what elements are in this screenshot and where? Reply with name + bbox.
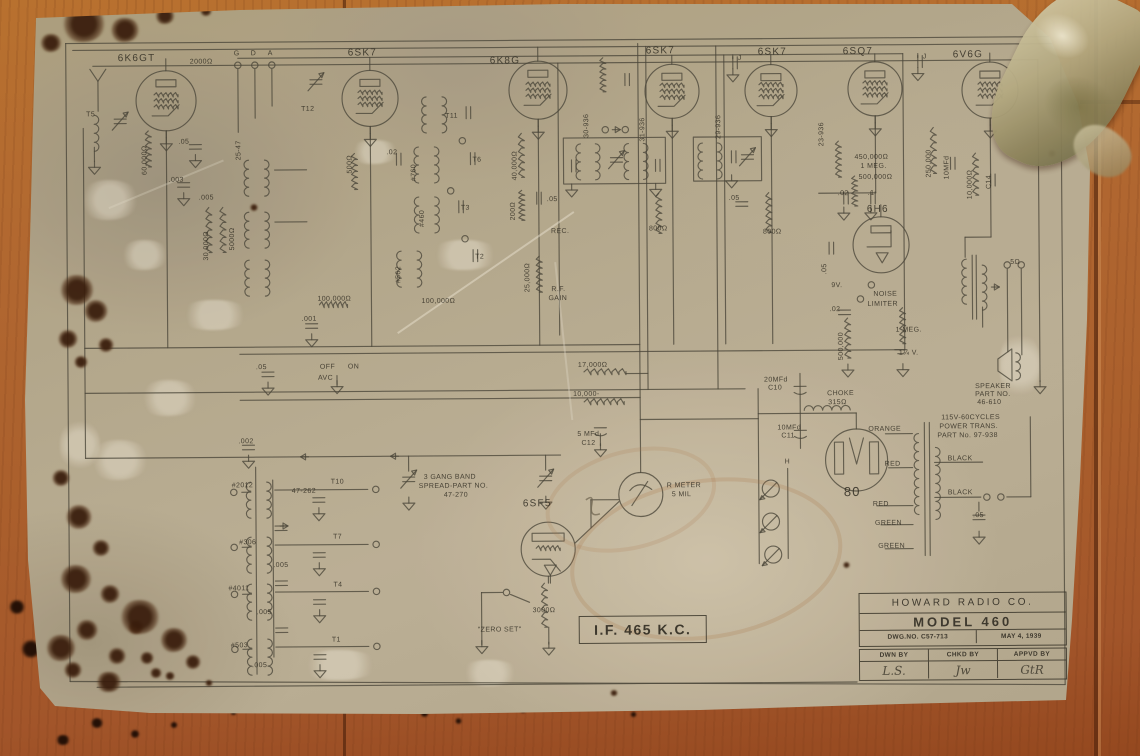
- schematic-label: C12: [581, 440, 595, 447]
- stain-blob: [250, 204, 258, 211]
- schematic-label: .005: [199, 194, 214, 201]
- schematic-label: #306: [239, 539, 256, 546]
- schematic-label: 6V6G: [953, 50, 983, 60]
- schematic-label: 6K8G: [490, 56, 520, 66]
- schematic-label: T5: [86, 111, 95, 118]
- schematic-label: .05: [973, 512, 984, 519]
- schematic-label: 6SQ7: [843, 47, 873, 57]
- schematic-label: PART No. 97-938: [937, 432, 998, 439]
- schematic-label: 30,000Ω: [203, 231, 210, 261]
- schematic-label: #562: [395, 266, 402, 283]
- schematic-label: 115V-60CYCLES: [941, 414, 1000, 421]
- schematic-label: REC.: [551, 228, 569, 235]
- photo-of-schematic: GDA2000ΩT12.02500ΩT560,000Ω.05.00330,000…: [0, 0, 1140, 756]
- model-number: MODEL 460: [860, 613, 1066, 631]
- schematic-label: .003: [169, 177, 184, 184]
- schematic-label: 1¼ V.: [899, 350, 919, 357]
- schematic-label: GAIN: [548, 295, 567, 302]
- schematic-label: 500,000: [838, 332, 845, 360]
- schematic-label: CHOKE: [827, 390, 854, 397]
- schematic-label: T2: [475, 254, 484, 261]
- schematic-label: 3000Ω: [533, 607, 556, 614]
- stain-blob: [90, 718, 104, 728]
- schematic-label: RED: [885, 461, 901, 468]
- schematic-label: OFF: [320, 364, 335, 371]
- schematic-label: 100,000Ω: [421, 298, 455, 305]
- schematic-label: 1 MEG.: [861, 163, 887, 170]
- schematic-label: 450,000Ω: [854, 154, 888, 161]
- schematic-label: GREEN: [878, 543, 905, 550]
- schematic-label: 9V.: [831, 282, 842, 289]
- schematic-label: .02: [830, 306, 841, 313]
- if-frequency-box: I.F. 465 K.C.: [579, 615, 707, 644]
- drawing-number: DWG.NO. C57-713: [860, 630, 977, 644]
- checked-by-header: CHKD BY: [928, 649, 997, 660]
- schematic-label: #460: [419, 210, 426, 227]
- schematic-label: T1: [332, 637, 341, 644]
- schematic-label: #760: [411, 164, 418, 181]
- stain-blob: [8, 600, 26, 614]
- schematic-label: .002: [238, 438, 253, 445]
- schematic-label: SPEAKER: [975, 383, 1011, 390]
- schematic-label: C10: [768, 385, 782, 392]
- schematic-label: 800Ω: [649, 225, 668, 232]
- schematic-label: POWER TRANS.: [939, 423, 998, 430]
- schematic-label: 30-936: [583, 114, 590, 138]
- schematic-paper: GDA2000ΩT12.02500ΩT560,000Ω.05.00330,000…: [0, 0, 1140, 756]
- schematic-label: PART NO.: [975, 391, 1011, 398]
- schematic-label: 25-47: [235, 140, 242, 160]
- schematic-label: .1: [868, 190, 875, 197]
- schematic-label: 29-936: [715, 115, 722, 139]
- schematic-label: 10MFd: [943, 156, 950, 180]
- schematic-label: 250,000: [925, 149, 932, 177]
- schematic-label: BLACK: [948, 455, 973, 462]
- approved-by-header: APPVD BY: [997, 649, 1066, 660]
- schematic-label: #4011: [228, 585, 249, 592]
- schematic-label: 6SK7: [348, 48, 377, 58]
- stain-blob: [74, 356, 88, 368]
- stain-blob: [170, 722, 178, 728]
- schematic-label: .005: [252, 662, 267, 669]
- schematic-label: T12: [301, 106, 314, 113]
- schematic-label: 2000Ω: [190, 58, 213, 65]
- checked-by-signature: Jw: [928, 661, 997, 678]
- schematic-label: 1 MEG.: [896, 327, 922, 334]
- drawn-by-header: DWN BY: [860, 650, 928, 661]
- stain-blob: [55, 735, 71, 745]
- schematic-label: 25,000Ω: [524, 263, 531, 293]
- schematic-label: 47-262: [292, 488, 316, 495]
- schematic-label: 3 GANG BAND: [424, 474, 476, 481]
- schematic-label: 20MFd: [764, 376, 788, 383]
- signature-block: DWN BY CHKD BY APPVD BY L.S. Jw GtR: [859, 648, 1067, 681]
- company-name: HOWARD RADIO CO.: [860, 593, 1066, 614]
- schematic-label: NOISE: [873, 291, 897, 298]
- schematic-label: ORANGE: [868, 426, 901, 433]
- schematic-label: #2012: [232, 482, 254, 489]
- schematic-label: C14: [986, 175, 993, 189]
- schematic-label: T4: [333, 582, 342, 589]
- schematic-label: 6SK7: [646, 46, 675, 56]
- stain-blob: [630, 712, 637, 717]
- schematic-label: 80: [844, 485, 861, 498]
- schematic-label: BLACK: [948, 489, 973, 496]
- schematic-label: .02: [386, 149, 397, 156]
- schematic-label: C11: [781, 432, 795, 439]
- schematic-label: 10MFd: [777, 424, 801, 431]
- schematic-label: T11: [445, 113, 458, 120]
- schematic-label: A: [268, 50, 273, 57]
- stain-blob: [130, 730, 140, 738]
- schematic-label: T6: [472, 157, 481, 164]
- schematic-label: 100,000Ω: [317, 296, 351, 303]
- schematic-label: .05: [821, 263, 828, 274]
- schematic-label: 17,000Ω: [578, 362, 608, 369]
- schematic-label: SPREAD-PART NO.: [419, 483, 488, 490]
- stain-blob: [843, 562, 850, 568]
- approved-by-signature: GtR: [997, 661, 1066, 678]
- stain-blob: [610, 690, 618, 696]
- schematic-label: R.F.: [551, 286, 565, 293]
- schematic-label: 46-610: [977, 399, 1001, 406]
- schematic-label: J: [738, 55, 742, 62]
- title-block: HOWARD RADIO CO. MODEL 460 DWG.NO. C57-7…: [859, 592, 1067, 647]
- schematic-label: T10: [331, 479, 344, 486]
- schematic-label: 5 MFd: [577, 431, 599, 438]
- schematic-label: 5000Ω: [229, 228, 236, 251]
- stain-blob: [455, 718, 462, 724]
- schematic-label: 500Ω: [346, 155, 353, 174]
- schematic-label: 10,000-: [573, 391, 600, 398]
- schematic-label: 40,000Ω: [511, 151, 518, 181]
- schematic-label: D: [251, 50, 257, 57]
- schematic-label: 47-270: [444, 492, 468, 499]
- schematic-label: 315Ω: [828, 399, 847, 406]
- schematic-label: .05: [256, 364, 267, 371]
- schematic-label: 500,000Ω: [859, 174, 893, 181]
- schematic-label: 5Ω: [1010, 259, 1020, 266]
- stain-blob: [140, 652, 154, 664]
- schematic-label: LIMITER: [867, 301, 897, 308]
- schematic-label: .005: [257, 609, 272, 616]
- schematic-label: 6SF5: [523, 499, 552, 509]
- schematic-label: .05: [729, 195, 740, 202]
- schematic-label: J: [923, 54, 927, 61]
- schematic-label: .05: [547, 196, 558, 203]
- schematic-label: AVC: [318, 375, 333, 382]
- schematic-label: H: [785, 458, 791, 465]
- schematic-label: 200Ω: [510, 202, 517, 221]
- schematic-label: 5 MIL: [672, 491, 692, 498]
- schematic-label: .05: [178, 139, 189, 146]
- schematic-label: R METER: [667, 482, 701, 489]
- drawing-date: MAY 4, 1939: [977, 630, 1066, 644]
- drawn-by-signature: L.S.: [860, 662, 928, 679]
- schematic-label: T3: [461, 205, 470, 212]
- schematic-label: RED: [873, 501, 889, 508]
- stain-blob: [205, 680, 213, 686]
- schematic-label: .005: [273, 562, 288, 569]
- schematic-label: 800Ω: [763, 229, 782, 236]
- schematic-label: #503: [231, 642, 248, 649]
- schematic-label: "ZERO SET": [478, 626, 522, 633]
- schematic-label: 6H6: [867, 205, 889, 215]
- schematic-label: 23-936: [818, 122, 825, 146]
- schematic-label: 60,000Ω: [141, 145, 148, 175]
- schematic-label: 31-936: [639, 117, 646, 141]
- schematic-label: GREEN: [875, 520, 902, 527]
- schematic-label: ON: [348, 363, 359, 370]
- schematic-label: .02: [838, 190, 849, 197]
- schematic-label: G: [234, 50, 240, 57]
- schematic-label: 10,000Ω: [967, 170, 974, 200]
- schematic-label: .001: [302, 316, 317, 323]
- schematic-label: 6K6GT: [118, 54, 156, 64]
- schematic-label: T7: [333, 534, 342, 541]
- schematic-label: 6SK7: [758, 47, 787, 57]
